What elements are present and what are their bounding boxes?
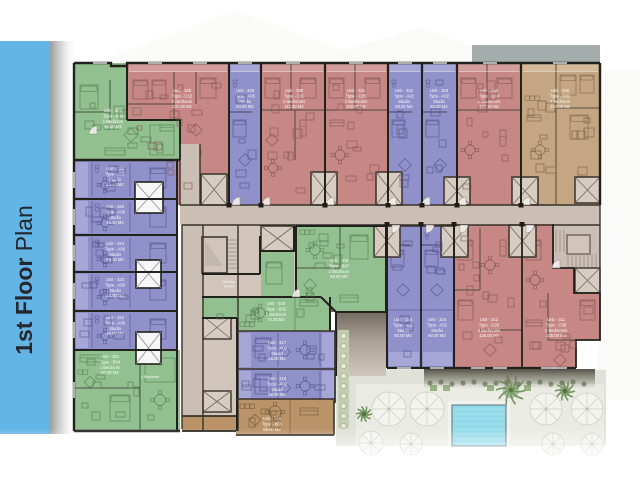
svg-text:1st Floor Plan: 1st Floor Plan	[11, 205, 37, 355]
